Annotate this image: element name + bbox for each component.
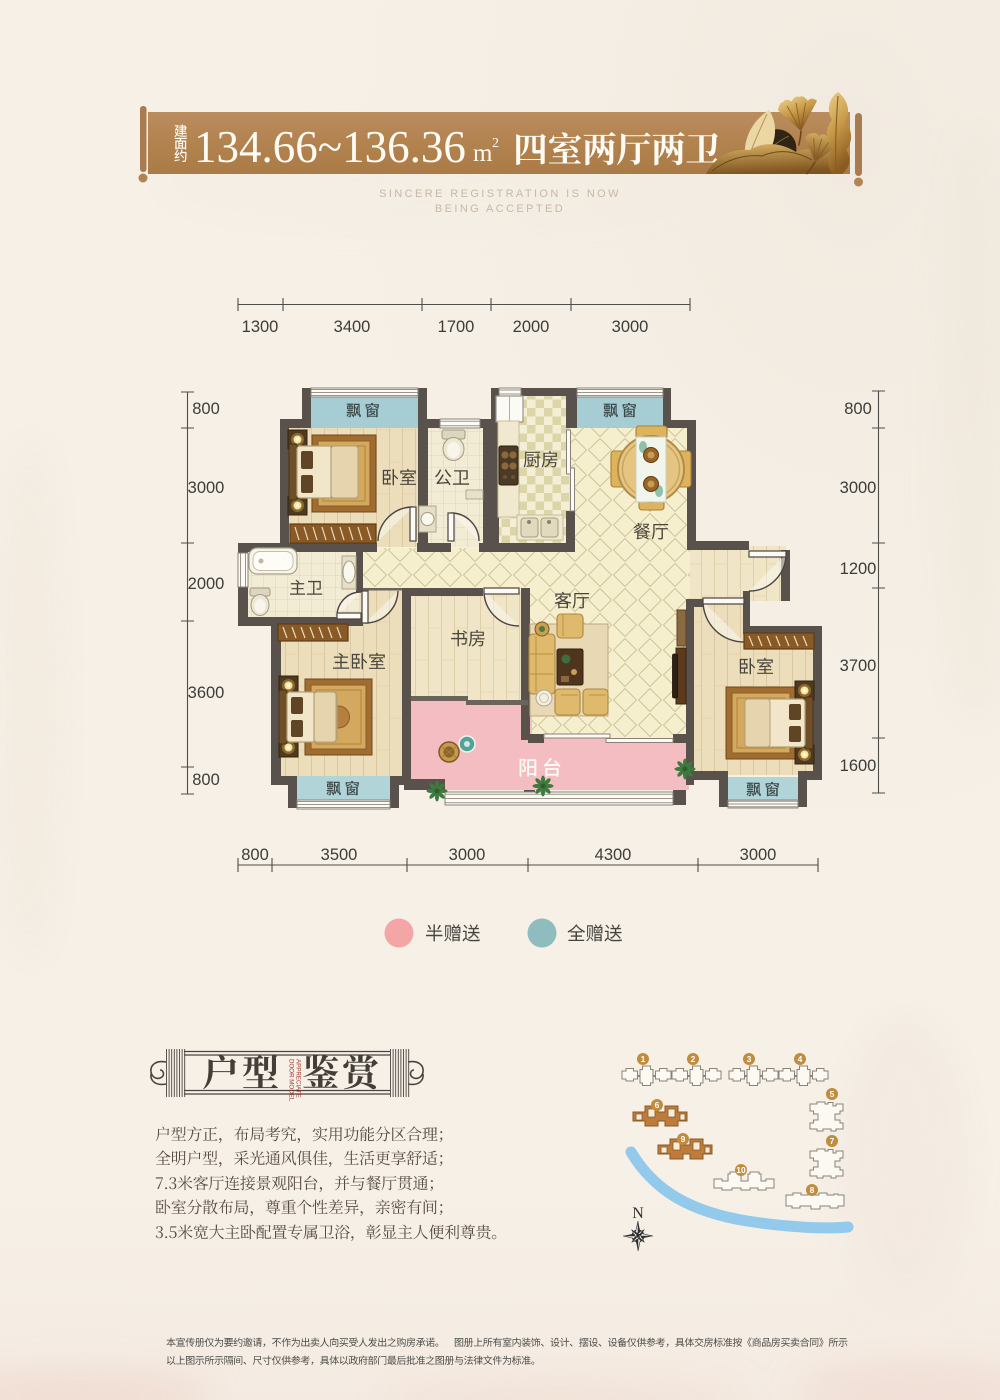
svg-text:1700: 1700 <box>438 318 475 336</box>
svg-text:2000: 2000 <box>188 575 225 593</box>
svg-text:800: 800 <box>241 846 269 864</box>
svg-text:SINCERE REGISTRATION IS NOW: SINCERE REGISTRATION IS NOW <box>379 188 621 200</box>
svg-text:3400: 3400 <box>334 318 371 336</box>
svg-text:6: 6 <box>655 1100 660 1110</box>
svg-text:3700: 3700 <box>840 657 877 675</box>
svg-text:2000: 2000 <box>513 318 550 336</box>
svg-text:7: 7 <box>830 1136 835 1146</box>
svg-text:134.66~136.36: 134.66~136.36 <box>194 122 466 172</box>
svg-text:1600: 1600 <box>840 757 877 775</box>
svg-text:800: 800 <box>192 771 220 789</box>
svg-text:3000: 3000 <box>740 846 777 864</box>
svg-text:3000: 3000 <box>188 479 225 497</box>
svg-text:APPRECIATE: APPRECIATE <box>295 1059 302 1098</box>
svg-text:m: m <box>473 140 493 167</box>
svg-text:3600: 3600 <box>188 684 225 702</box>
svg-text:3000: 3000 <box>612 318 649 336</box>
svg-text:5: 5 <box>830 1089 835 1099</box>
svg-text:N: N <box>632 1205 644 1222</box>
svg-text:1: 1 <box>641 1054 646 1064</box>
svg-text:3000: 3000 <box>449 846 486 864</box>
svg-text:1300: 1300 <box>242 318 279 336</box>
svg-text:800: 800 <box>844 400 872 418</box>
svg-text:9: 9 <box>681 1134 686 1144</box>
svg-text:10: 10 <box>736 1165 746 1175</box>
svg-text:2: 2 <box>691 1054 696 1064</box>
svg-text:3: 3 <box>747 1054 752 1064</box>
svg-text:8: 8 <box>810 1185 815 1195</box>
svg-text:800: 800 <box>192 400 220 418</box>
svg-text:2: 2 <box>492 136 499 151</box>
svg-text:BEING ACCEPTED: BEING ACCEPTED <box>435 203 565 215</box>
svg-text:4: 4 <box>798 1054 803 1064</box>
svg-text:1200: 1200 <box>840 560 877 578</box>
svg-text:DOOR MODEL: DOOR MODEL <box>288 1059 295 1102</box>
svg-text:4300: 4300 <box>595 846 632 864</box>
svg-text:3500: 3500 <box>321 846 358 864</box>
svg-text:3000: 3000 <box>840 479 877 497</box>
